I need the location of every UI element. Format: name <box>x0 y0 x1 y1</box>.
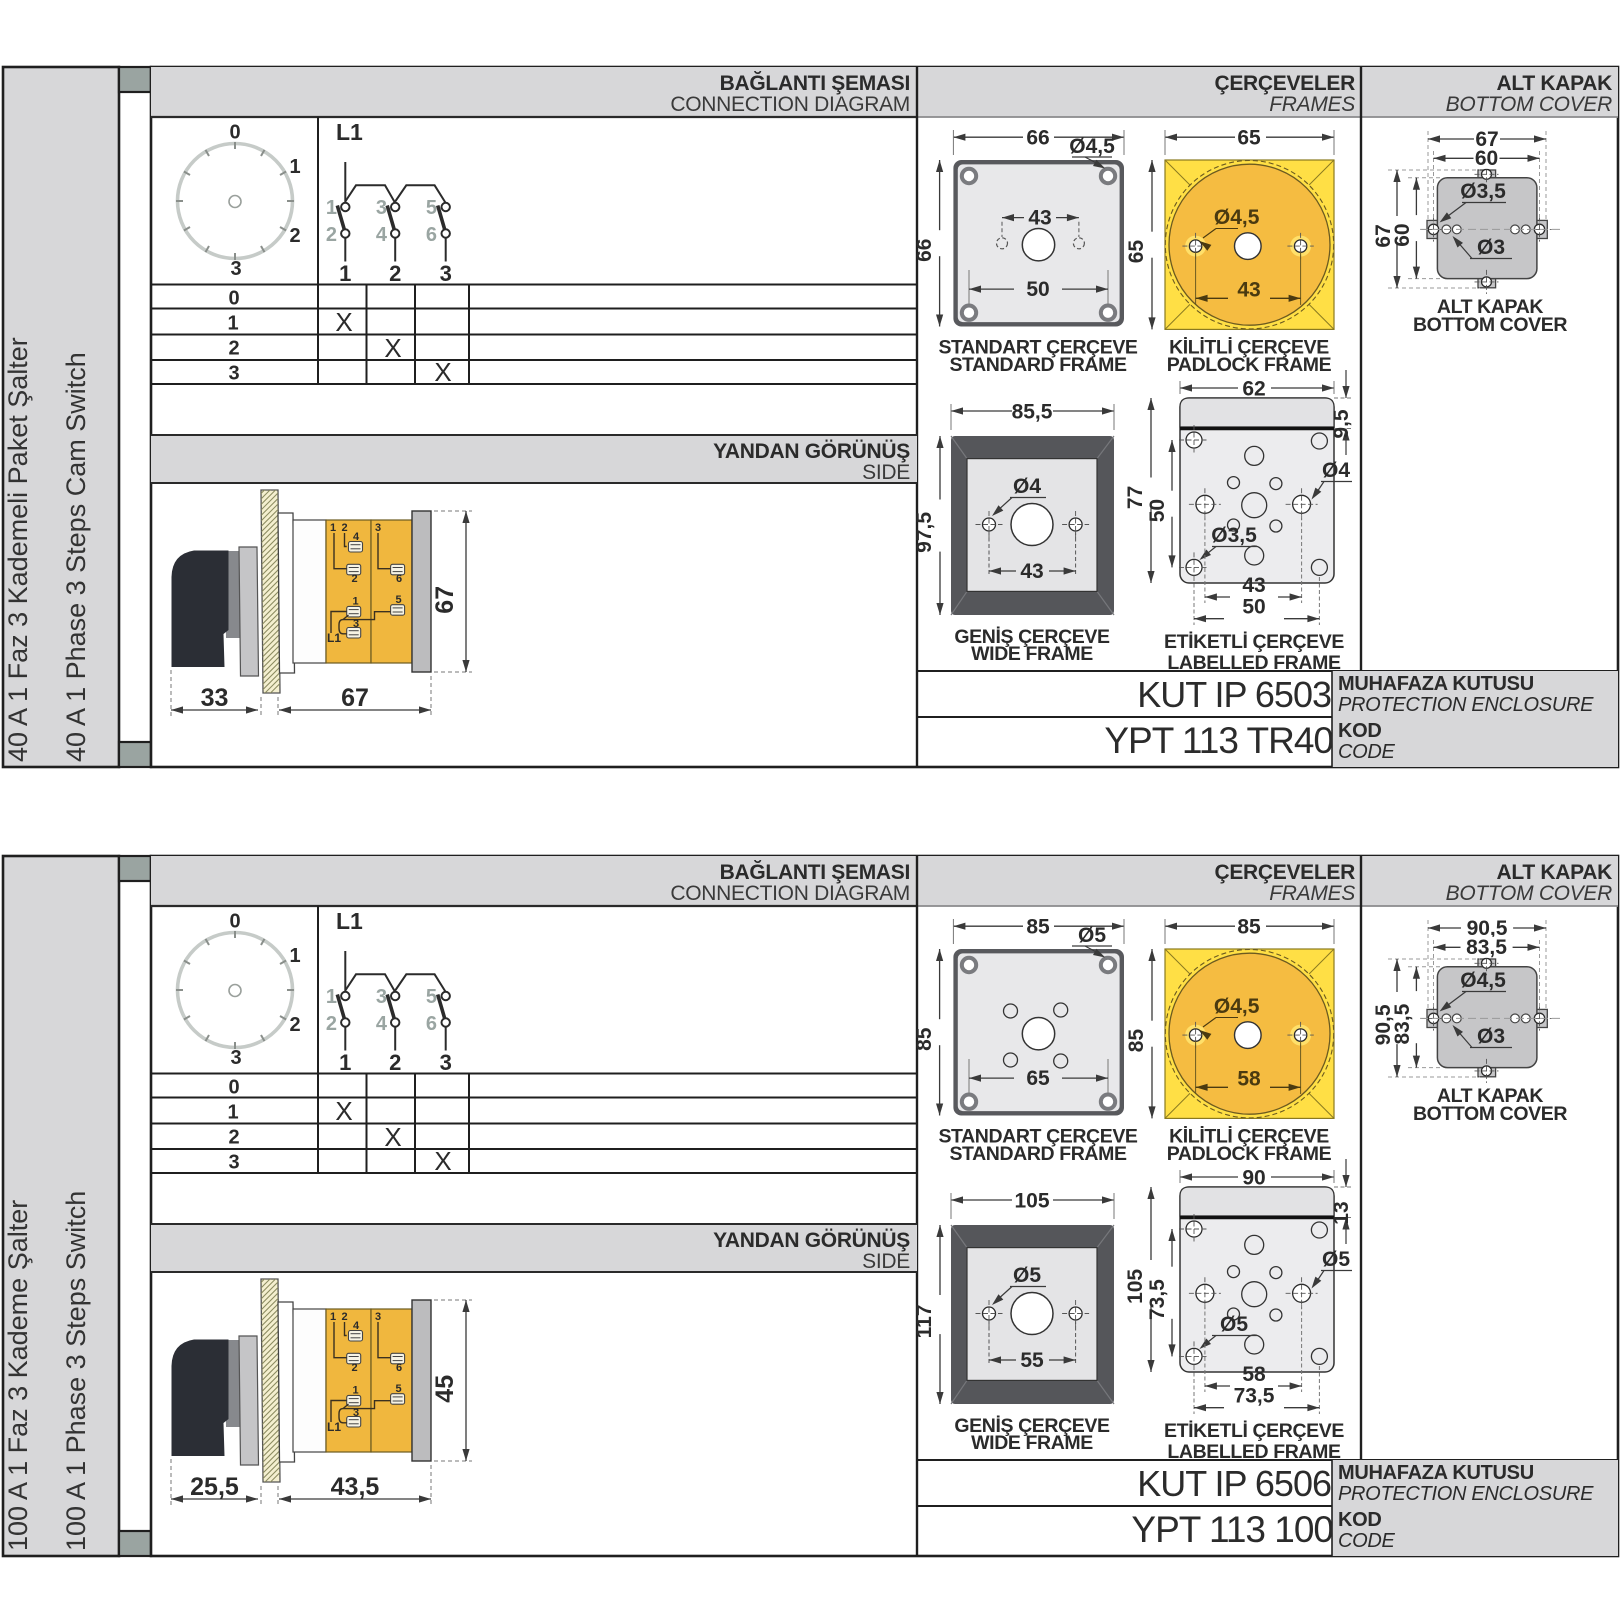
svg-text:1: 1 <box>289 156 300 178</box>
svg-text:3: 3 <box>376 986 387 1008</box>
svg-text:2: 2 <box>289 225 300 247</box>
svg-text:KUT IP 6503: KUT IP 6503 <box>1137 674 1331 715</box>
svg-text:2: 2 <box>351 1362 357 1374</box>
svg-text:43: 43 <box>1237 279 1260 302</box>
svg-text:77: 77 <box>1124 486 1147 509</box>
svg-text:CONNECTION DIAGRAM: CONNECTION DIAGRAM <box>670 93 910 116</box>
svg-text:3: 3 <box>353 618 359 630</box>
svg-text:L1: L1 <box>327 1420 341 1434</box>
svg-text:73,5: 73,5 <box>1234 1385 1275 1408</box>
svg-text:X: X <box>434 1146 451 1176</box>
svg-text:6: 6 <box>396 1362 402 1374</box>
svg-text:5: 5 <box>395 594 401 606</box>
svg-text:2: 2 <box>389 261 401 286</box>
svg-text:105: 105 <box>1124 1269 1147 1304</box>
svg-text:MUHAFAZA KUTUSU: MUHAFAZA KUTUSU <box>1338 1462 1534 1484</box>
svg-text:2: 2 <box>389 1050 401 1075</box>
svg-text:2: 2 <box>341 522 347 534</box>
svg-text:0: 0 <box>229 122 240 144</box>
svg-text:43: 43 <box>1028 207 1051 230</box>
svg-text:ÇERÇEVELER: ÇERÇEVELER <box>1214 861 1355 884</box>
svg-text:YANDAN GÖRÜNÜŞ: YANDAN GÖRÜNÜŞ <box>713 1229 910 1252</box>
svg-text:YPT 113 TR40: YPT 113 TR40 <box>1104 720 1333 761</box>
svg-text:1: 1 <box>339 261 351 286</box>
svg-text:3: 3 <box>440 261 452 286</box>
svg-text:1: 1 <box>227 313 238 335</box>
svg-text:50: 50 <box>1146 499 1169 522</box>
svg-text:43,5: 43,5 <box>331 1473 380 1501</box>
svg-text:Ø5: Ø5 <box>1220 1313 1248 1336</box>
svg-text:100 A 1 Faz 3 Kademe Şalter: 100 A 1 Faz 3 Kademe Şalter <box>3 1200 33 1551</box>
svg-text:4: 4 <box>376 224 388 246</box>
svg-text:45: 45 <box>431 1375 459 1403</box>
svg-text:5: 5 <box>395 1383 401 1395</box>
svg-text:3: 3 <box>230 258 241 280</box>
svg-text:3: 3 <box>228 363 239 385</box>
svg-text:2: 2 <box>341 1311 347 1323</box>
svg-text:85: 85 <box>913 1027 936 1051</box>
svg-text:SIDE: SIDE <box>862 1250 910 1273</box>
svg-text:3: 3 <box>375 1311 381 1323</box>
svg-text:ETİKETLİ ÇERÇEVE: ETİKETLİ ÇERÇEVE <box>1164 1419 1344 1442</box>
svg-text:66: 66 <box>913 239 936 262</box>
svg-text:CODE: CODE <box>1338 1530 1396 1552</box>
svg-text:67: 67 <box>431 586 459 614</box>
svg-text:X: X <box>434 357 451 387</box>
svg-text:STANDARD FRAME: STANDARD FRAME <box>949 354 1127 376</box>
svg-text:X: X <box>335 307 352 337</box>
svg-text:1: 1 <box>330 1311 336 1323</box>
svg-text:117: 117 <box>913 1304 936 1338</box>
svg-text:CONNECTION DIAGRAM: CONNECTION DIAGRAM <box>670 882 910 905</box>
svg-text:67: 67 <box>341 684 369 712</box>
svg-text:0: 0 <box>229 911 240 933</box>
svg-text:3: 3 <box>230 1047 241 1069</box>
svg-text:2: 2 <box>228 338 239 360</box>
svg-text:6: 6 <box>426 1013 437 1035</box>
svg-text:BOTTOM COVER: BOTTOM COVER <box>1446 93 1612 116</box>
svg-text:YPT 113 100: YPT 113 100 <box>1131 1509 1333 1550</box>
svg-text:KOD: KOD <box>1338 720 1382 742</box>
svg-text:50: 50 <box>1242 596 1265 619</box>
svg-text:4: 4 <box>376 1013 388 1035</box>
svg-text:85,5: 85,5 <box>1012 401 1053 424</box>
svg-text:85: 85 <box>1125 1029 1148 1053</box>
svg-text:25,5: 25,5 <box>190 1473 239 1501</box>
svg-text:Ø4: Ø4 <box>1322 459 1350 482</box>
svg-text:6: 6 <box>396 573 402 585</box>
svg-text:Ø3,5: Ø3,5 <box>1460 180 1506 203</box>
svg-text:Ø4: Ø4 <box>1013 475 1041 498</box>
svg-text:50: 50 <box>1026 278 1049 301</box>
svg-text:YANDAN GÖRÜNÜŞ: YANDAN GÖRÜNÜŞ <box>713 440 910 463</box>
svg-text:85: 85 <box>1237 916 1261 939</box>
svg-text:ALT KAPAK: ALT KAPAK <box>1496 861 1612 884</box>
svg-text:65: 65 <box>1125 240 1148 264</box>
svg-text:1: 1 <box>352 596 358 608</box>
svg-text:60: 60 <box>1391 223 1414 246</box>
svg-text:1: 1 <box>330 522 336 534</box>
svg-text:97,5: 97,5 <box>913 512 936 553</box>
svg-text:1: 1 <box>326 197 337 219</box>
svg-text:58: 58 <box>1237 1068 1261 1091</box>
svg-text:13: 13 <box>1330 1201 1353 1224</box>
svg-text:2: 2 <box>228 1127 239 1149</box>
svg-text:Ø5: Ø5 <box>1078 924 1106 947</box>
svg-text:2: 2 <box>289 1014 300 1036</box>
svg-text:1: 1 <box>289 945 300 967</box>
svg-text:6: 6 <box>426 224 437 246</box>
svg-text:3: 3 <box>353 1407 359 1419</box>
svg-text:KOD: KOD <box>1338 1509 1382 1531</box>
svg-text:58: 58 <box>1242 1363 1266 1386</box>
svg-text:9,5: 9,5 <box>1330 409 1353 439</box>
svg-text:Ø3,5: Ø3,5 <box>1211 524 1257 547</box>
svg-text:60: 60 <box>1475 147 1498 170</box>
svg-text:ÇERÇEVELER: ÇERÇEVELER <box>1214 72 1355 95</box>
svg-text:1: 1 <box>352 1385 358 1397</box>
svg-text:40 A 1 Phase 3 Steps Cam Switc: 40 A 1 Phase 3 Steps Cam Switch <box>61 352 91 762</box>
svg-text:X: X <box>335 1096 352 1126</box>
svg-text:X: X <box>384 1122 401 1152</box>
svg-text:ALT KAPAK: ALT KAPAK <box>1496 72 1612 95</box>
svg-text:73,5: 73,5 <box>1146 1279 1169 1320</box>
svg-text:90: 90 <box>1242 1167 1265 1190</box>
svg-text:BOTTOM COVER: BOTTOM COVER <box>1413 314 1567 336</box>
svg-text:2: 2 <box>326 224 337 246</box>
svg-text:WIDE FRAME: WIDE FRAME <box>971 1432 1093 1454</box>
svg-text:100 A 1 Phase 3 Steps Switch: 100 A 1 Phase 3 Steps Switch <box>61 1191 91 1551</box>
svg-text:PADLOCK FRAME: PADLOCK FRAME <box>1167 1143 1332 1165</box>
svg-text:43: 43 <box>1020 560 1043 583</box>
svg-text:BAĞLANTI ŞEMASI: BAĞLANTI ŞEMASI <box>720 860 910 884</box>
svg-text:L1: L1 <box>336 908 363 934</box>
svg-text:KUT IP 6506: KUT IP 6506 <box>1137 1463 1331 1504</box>
svg-text:0: 0 <box>228 1077 239 1099</box>
svg-text:CODE: CODE <box>1338 741 1396 763</box>
svg-text:3: 3 <box>375 522 381 534</box>
svg-text:43: 43 <box>1242 574 1265 597</box>
svg-text:PADLOCK FRAME: PADLOCK FRAME <box>1167 354 1332 376</box>
svg-text:0: 0 <box>228 288 239 310</box>
svg-text:Ø4,5: Ø4,5 <box>1214 995 1260 1018</box>
svg-text:Ø3: Ø3 <box>1477 236 1505 259</box>
svg-text:BOTTOM COVER: BOTTOM COVER <box>1413 1103 1567 1125</box>
svg-text:1: 1 <box>326 986 337 1008</box>
svg-text:85: 85 <box>1026 916 1050 939</box>
svg-text:BOTTOM COVER: BOTTOM COVER <box>1446 882 1612 905</box>
svg-text:PROTECTION ENCLOSURE: PROTECTION ENCLOSURE <box>1338 694 1594 716</box>
svg-text:FRAMES: FRAMES <box>1269 882 1355 905</box>
svg-text:33: 33 <box>201 684 229 712</box>
svg-text:MUHAFAZA KUTUSU: MUHAFAZA KUTUSU <box>1338 673 1534 695</box>
svg-text:FRAMES: FRAMES <box>1269 93 1355 116</box>
svg-text:55: 55 <box>1020 1349 1044 1372</box>
svg-text:83,5: 83,5 <box>1466 936 1507 959</box>
svg-text:L1: L1 <box>327 631 341 645</box>
svg-text:Ø5: Ø5 <box>1013 1264 1041 1287</box>
svg-text:X: X <box>384 333 401 363</box>
svg-text:L1: L1 <box>336 119 363 145</box>
svg-text:5: 5 <box>426 986 437 1008</box>
svg-text:1: 1 <box>339 1050 351 1075</box>
svg-text:1: 1 <box>227 1102 238 1124</box>
svg-text:Ø5: Ø5 <box>1322 1248 1350 1271</box>
svg-text:3: 3 <box>376 197 387 219</box>
svg-text:ETİKETLİ ÇERÇEVE: ETİKETLİ ÇERÇEVE <box>1164 630 1344 653</box>
svg-text:2: 2 <box>351 573 357 585</box>
svg-text:5: 5 <box>426 197 437 219</box>
svg-text:3: 3 <box>228 1152 239 1174</box>
svg-text:SIDE: SIDE <box>862 461 910 484</box>
svg-text:Ø4,5: Ø4,5 <box>1069 135 1115 158</box>
svg-text:WIDE FRAME: WIDE FRAME <box>971 643 1093 665</box>
svg-text:Ø4,5: Ø4,5 <box>1460 969 1506 992</box>
svg-text:65: 65 <box>1026 1067 1050 1090</box>
svg-text:Ø3: Ø3 <box>1477 1025 1505 1048</box>
svg-text:3: 3 <box>440 1050 452 1075</box>
svg-text:4: 4 <box>353 531 360 543</box>
svg-text:2: 2 <box>326 1013 337 1035</box>
svg-text:Ø4,5: Ø4,5 <box>1214 206 1260 229</box>
svg-text:4: 4 <box>353 1320 360 1332</box>
svg-text:PROTECTION ENCLOSURE: PROTECTION ENCLOSURE <box>1338 1483 1594 1505</box>
svg-text:40 A 1 Faz 3 Kademeli Paket Şa: 40 A 1 Faz 3 Kademeli Paket Şalter <box>3 337 33 762</box>
svg-text:STANDARD FRAME: STANDARD FRAME <box>949 1143 1127 1165</box>
svg-text:83,5: 83,5 <box>1391 1003 1414 1044</box>
svg-text:105: 105 <box>1014 1190 1049 1213</box>
svg-text:65: 65 <box>1237 127 1261 150</box>
svg-text:BAĞLANTI ŞEMASI: BAĞLANTI ŞEMASI <box>720 71 910 95</box>
svg-text:62: 62 <box>1242 378 1265 401</box>
svg-text:66: 66 <box>1026 127 1049 150</box>
